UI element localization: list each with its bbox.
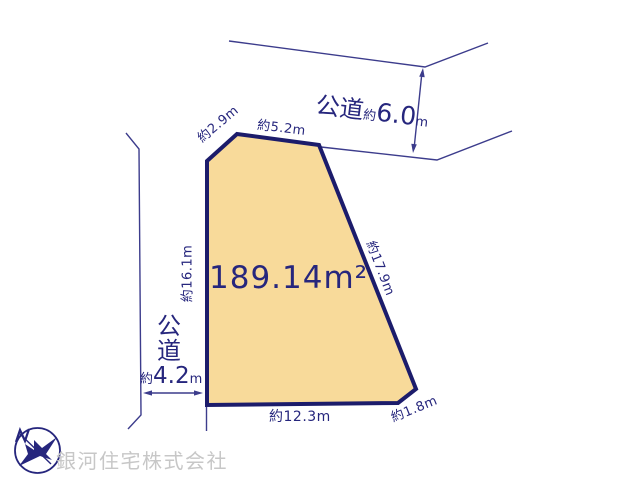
left-road-width-label: 約4.2m: [140, 365, 202, 388]
top-road-width-unit: m: [415, 114, 429, 130]
left-road-name: 公 道: [156, 314, 182, 364]
left-road-approx: 約: [140, 372, 153, 387]
top-road-width-value: 6.0: [375, 98, 418, 132]
left-road-width-arrow: [143, 390, 203, 395]
north-compass-icon: [15, 428, 60, 473]
top-road-name: 公道: [314, 91, 365, 125]
land-plot-diagram: 公道約6.0m 約2.9m 約5.2m 約17.9m 約16.1m 約12.3m…: [0, 0, 640, 480]
edge-label-bottom: 約12.3m: [269, 410, 331, 424]
left-road-boundary-line: [126, 133, 141, 429]
diagram-canvas: [0, 0, 640, 480]
edge-label-left: 約16.1m: [181, 245, 194, 303]
parcel-area-label: 189.14m²: [209, 263, 368, 294]
company-watermark: 銀河住宅株式会社: [56, 450, 228, 472]
top-road-lower-boundary-line: [321, 131, 512, 160]
left-road-width-unit: m: [190, 372, 203, 387]
left-road-width-value: 4.2: [153, 363, 190, 389]
top-road-upper-boundary-line: [229, 41, 488, 67]
left-road-name-char-1: 公: [156, 314, 182, 339]
left-road-name-char-2: 道: [156, 339, 182, 364]
